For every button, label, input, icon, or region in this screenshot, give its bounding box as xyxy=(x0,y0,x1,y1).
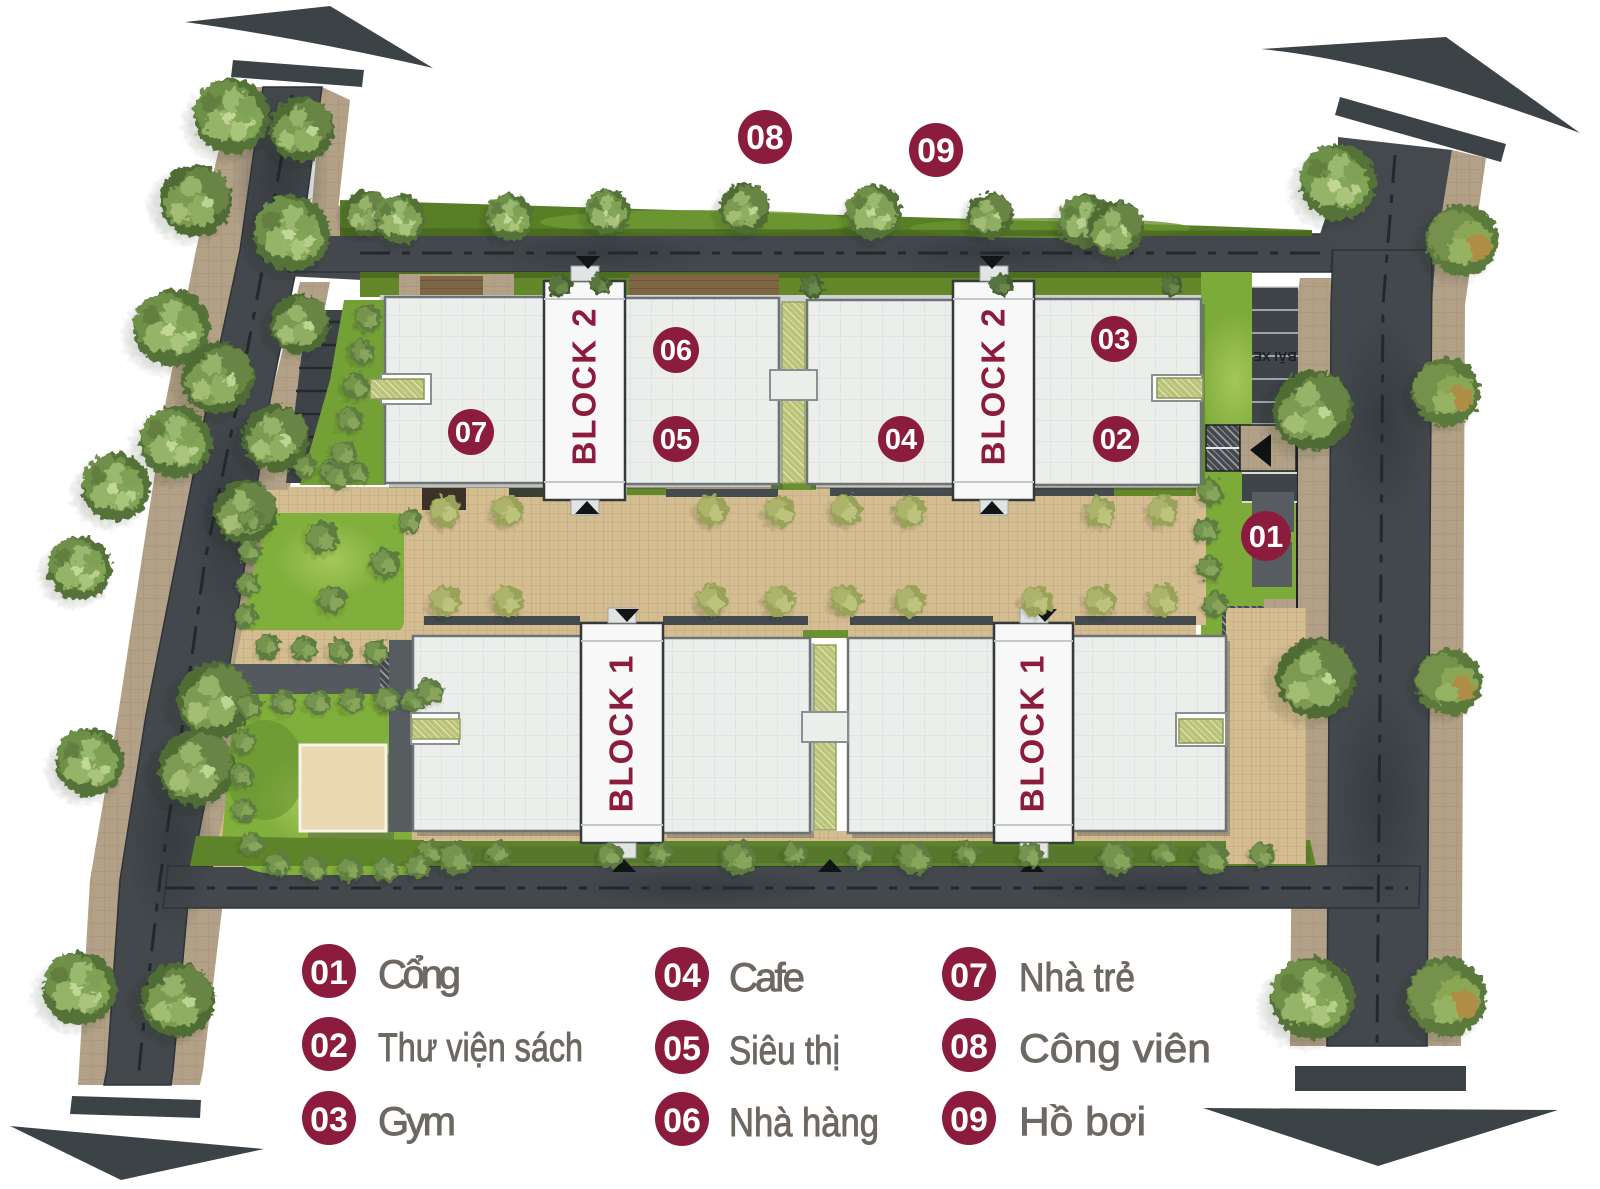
svg-text:07: 07 xyxy=(455,417,487,449)
svg-text:08: 08 xyxy=(950,1028,988,1066)
svg-text:07: 07 xyxy=(950,957,988,995)
svg-text:05: 05 xyxy=(660,424,692,456)
svg-text:09: 09 xyxy=(917,132,955,170)
svg-text:Gym: Gym xyxy=(378,1100,456,1144)
svg-text:03: 03 xyxy=(1098,324,1130,356)
svg-text:06: 06 xyxy=(663,1102,701,1140)
svg-text:Hồ bơi: Hồ bơi xyxy=(1019,1100,1146,1144)
svg-text:Cafe: Cafe xyxy=(729,956,805,1000)
svg-text:01: 01 xyxy=(310,954,348,992)
svg-text:BÃI XE: BÃI XE xyxy=(1253,349,1297,364)
svg-text:03: 03 xyxy=(310,1101,348,1139)
svg-text:Nhà trẻ: Nhà trẻ xyxy=(1019,956,1135,1000)
svg-text:04: 04 xyxy=(885,424,917,456)
svg-text:04: 04 xyxy=(663,957,701,995)
svg-text:01: 01 xyxy=(1249,519,1283,554)
svg-text:05: 05 xyxy=(663,1030,701,1068)
svg-text:BLOCK 1: BLOCK 1 xyxy=(603,654,640,813)
svg-text:Cổng: Cổng xyxy=(378,953,461,997)
svg-text:02: 02 xyxy=(310,1027,348,1065)
svg-text:02: 02 xyxy=(1100,424,1132,456)
svg-text:08: 08 xyxy=(746,119,784,157)
svg-text:Công viên: Công viên xyxy=(1019,1027,1211,1071)
svg-text:Thư viện sách: Thư viện sách xyxy=(378,1026,583,1070)
svg-text:09: 09 xyxy=(950,1101,988,1139)
svg-text:BLOCK 1: BLOCK 1 xyxy=(1014,654,1051,813)
svg-text:06: 06 xyxy=(660,335,692,367)
svg-text:BLOCK 2: BLOCK 2 xyxy=(975,307,1012,466)
svg-text:Siêu thị: Siêu thị xyxy=(729,1029,840,1073)
svg-text:Nhà hàng: Nhà hàng xyxy=(729,1101,879,1145)
svg-text:BLOCK 2: BLOCK 2 xyxy=(566,307,603,466)
